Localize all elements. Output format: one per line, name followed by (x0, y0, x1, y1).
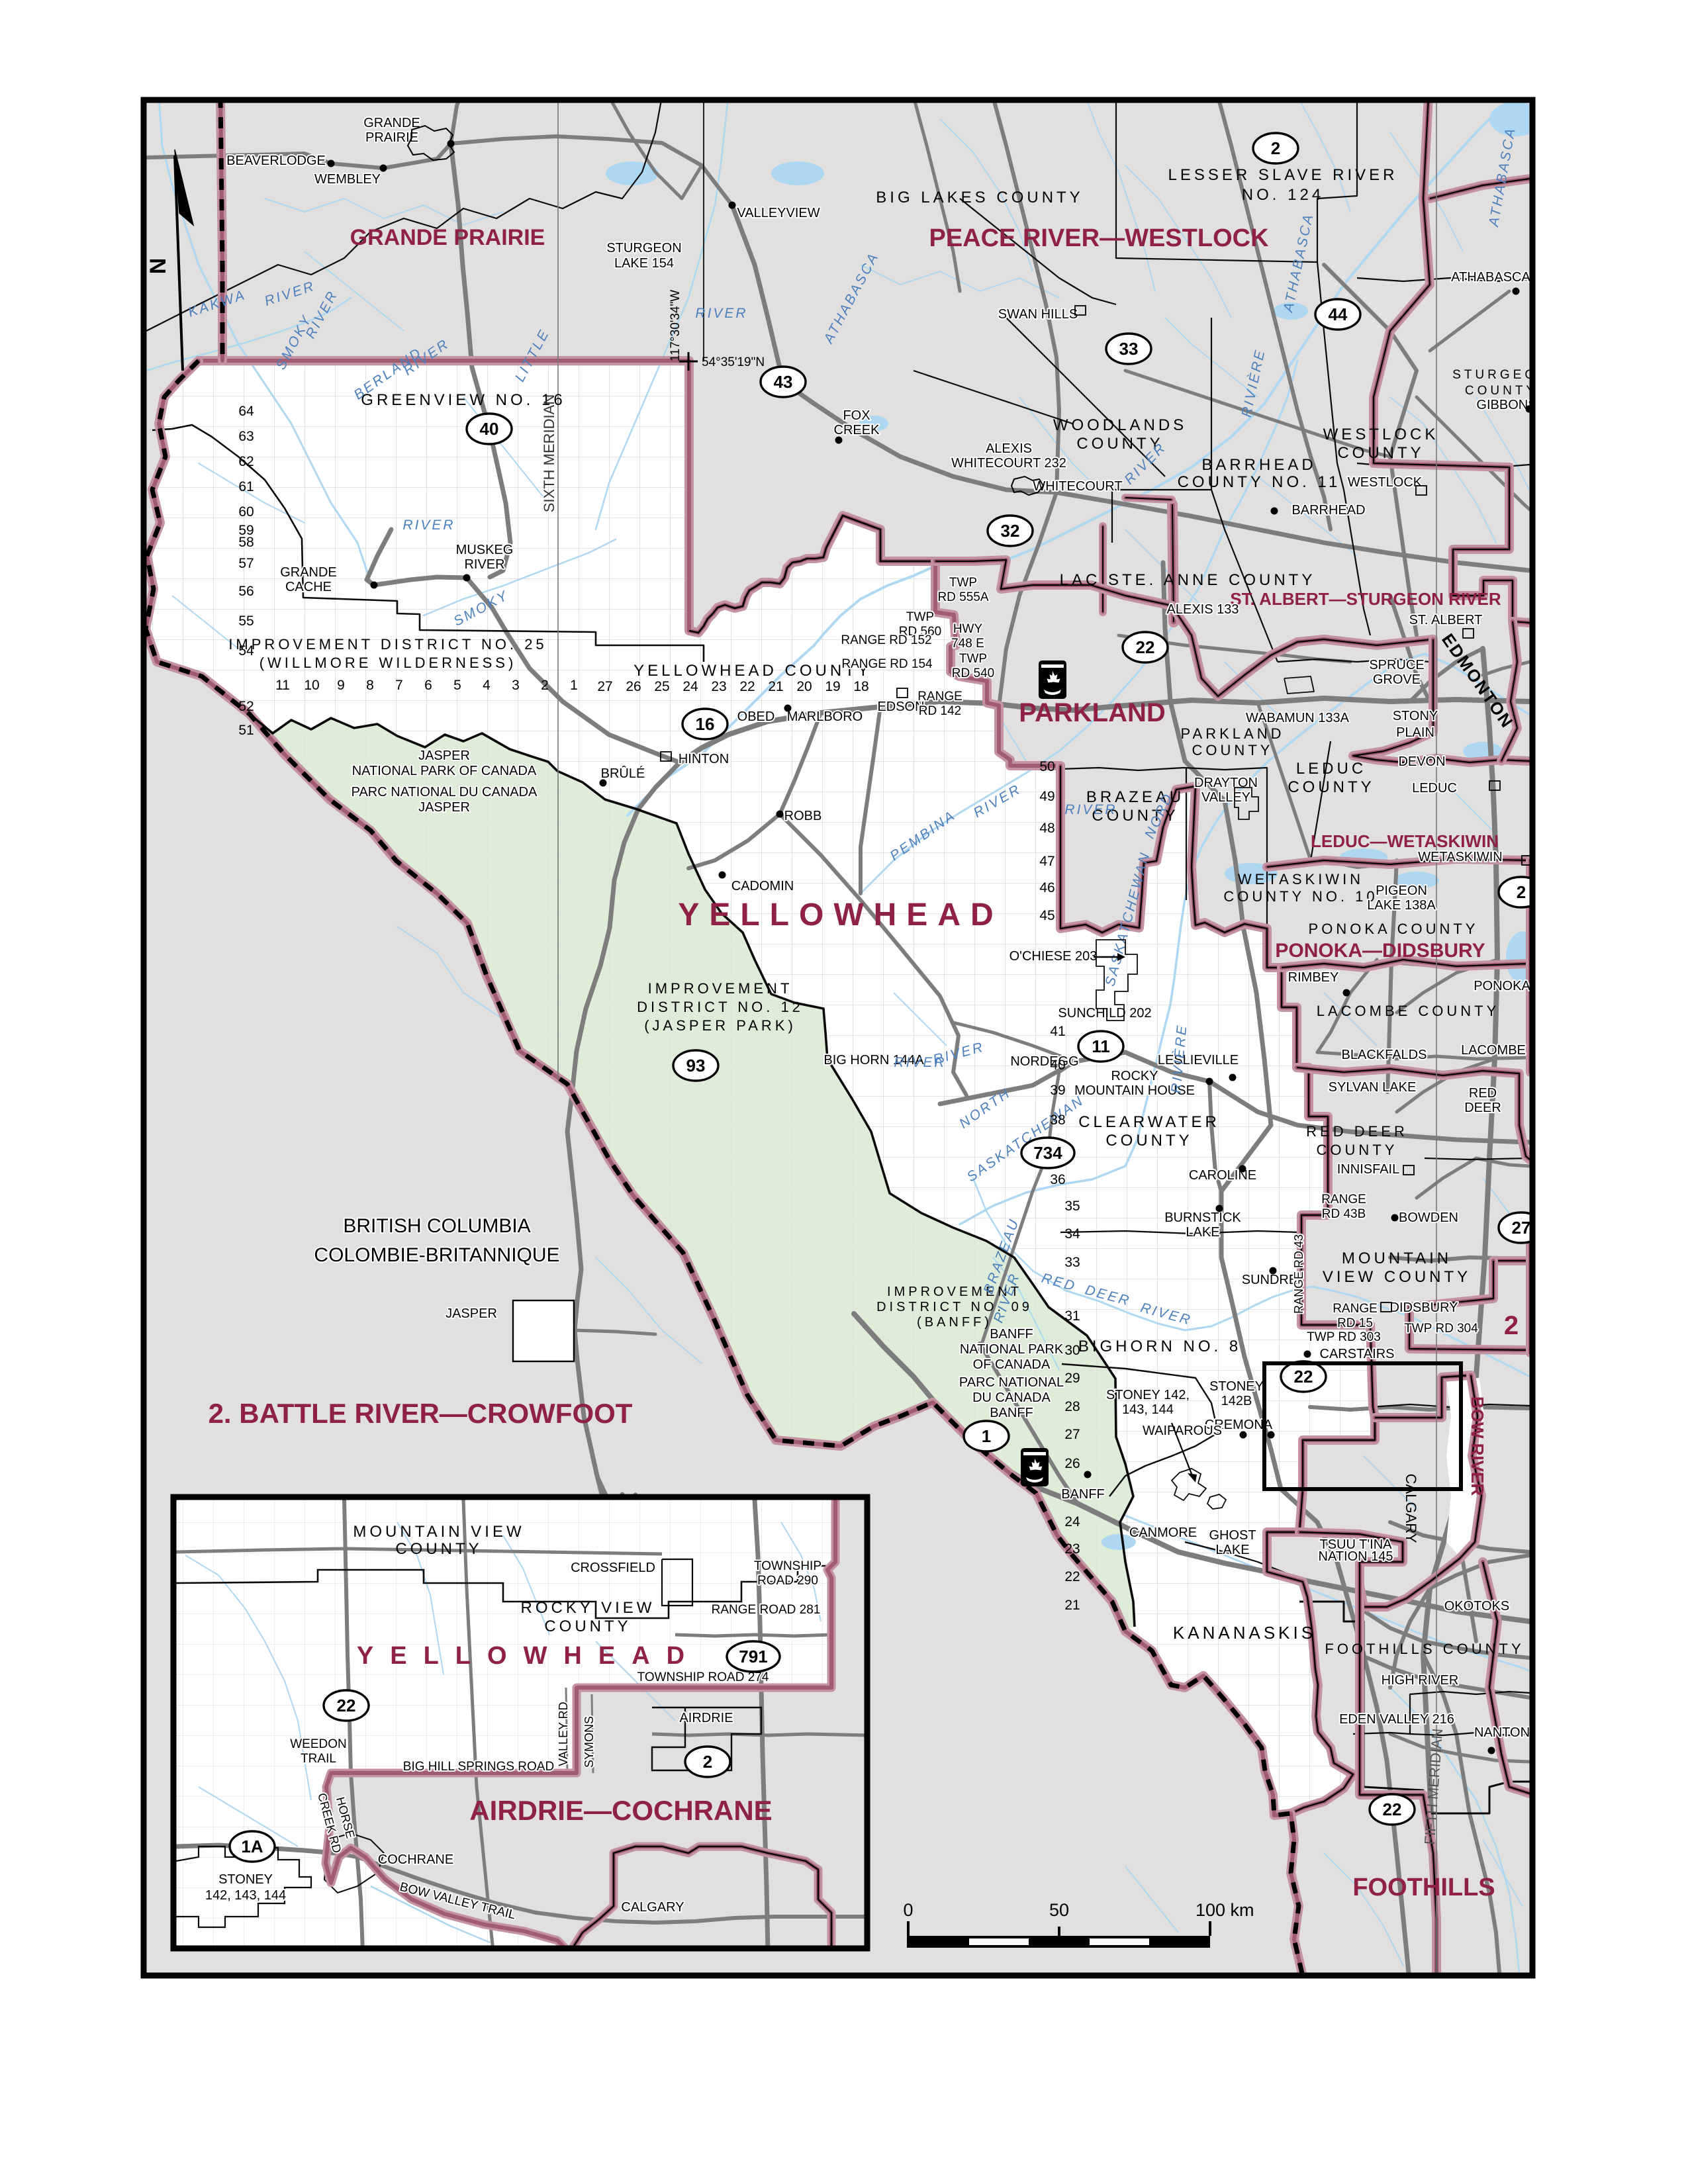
svg-text:TWP RD 303: TWP RD 303 (1307, 1330, 1381, 1344)
svg-text:AIRDRIE—COCHRANE: AIRDRIE—COCHRANE (469, 1795, 772, 1826)
svg-text:24: 24 (682, 679, 698, 694)
svg-text:CAROLINE: CAROLINE (1189, 1168, 1256, 1183)
svg-text:23: 23 (711, 679, 726, 694)
svg-text:BANFF: BANFF (990, 1327, 1033, 1342)
svg-text:RANGE: RANGE (1321, 1193, 1366, 1206)
svg-text:2: 2 (1504, 1311, 1519, 1340)
svg-text:58: 58 (238, 535, 254, 550)
svg-text:LESSER SLAVE RIVER: LESSER SLAVE RIVER (1168, 166, 1398, 184)
svg-text:45: 45 (1039, 908, 1055, 923)
svg-text:142B: 142B (1221, 1394, 1252, 1408)
svg-text:BARRHEAD: BARRHEAD (1291, 503, 1365, 518)
svg-text:WHITECOURT 232: WHITECOURT 232 (951, 456, 1066, 471)
svg-text:CACHE: CACHE (285, 580, 332, 594)
svg-text:RANGE: RANGE (917, 690, 962, 704)
svg-text:748 E: 748 E (951, 637, 984, 651)
svg-text:CANMORE: CANMORE (1129, 1525, 1197, 1540)
svg-text:117°30'34"W: 117°30'34"W (669, 290, 682, 362)
svg-text:10: 10 (304, 678, 319, 693)
svg-text:21: 21 (1064, 1598, 1080, 1613)
svg-text:NATION 145: NATION 145 (1319, 1549, 1393, 1564)
svg-text:27: 27 (1512, 1218, 1531, 1238)
svg-text:BOW RIVER: BOW RIVER (1468, 1396, 1487, 1496)
svg-text:VALLEYVIEW: VALLEYVIEW (737, 206, 820, 220)
svg-text:ALEXIS 133: ALEXIS 133 (1167, 602, 1239, 617)
svg-text:COUNTY: COUNTY (544, 1617, 631, 1635)
svg-text:29: 29 (1064, 1371, 1080, 1386)
svg-text:49: 49 (1039, 789, 1055, 804)
svg-text:BURNSTICK: BURNSTICK (1164, 1210, 1241, 1225)
svg-text:SWAN HILLS: SWAN HILLS (998, 307, 1078, 322)
svg-text:COUNTY: COUNTY (395, 1540, 482, 1558)
svg-text:16: 16 (696, 714, 715, 734)
svg-text:40: 40 (480, 419, 499, 439)
svg-text:LACOMBE COUNTY: LACOMBE COUNTY (1317, 1003, 1500, 1019)
svg-text:36: 36 (1050, 1172, 1065, 1187)
svg-text:6: 6 (424, 678, 432, 693)
svg-text:48: 48 (1039, 821, 1055, 836)
svg-text:MARLBORO: MARLBORO (787, 709, 863, 724)
svg-text:BRÛLÉ: BRÛLÉ (601, 766, 645, 781)
svg-text:CARSTAIRS: CARSTAIRS (1320, 1347, 1395, 1361)
svg-text:BRITISH COLUMBIA: BRITISH COLUMBIA (343, 1215, 530, 1237)
svg-text:JASPER: JASPER (445, 1306, 497, 1321)
svg-text:22: 22 (1136, 637, 1155, 657)
svg-text:40: 40 (1050, 1058, 1065, 1073)
svg-text:SUNDRE: SUNDRE (1242, 1273, 1297, 1287)
svg-text:BIGHORN NO. 8: BIGHORN NO. 8 (1078, 1338, 1241, 1355)
svg-text:11: 11 (1092, 1036, 1110, 1056)
svg-text:NATIONAL PARK: NATIONAL PARK (960, 1342, 1064, 1357)
svg-text:RD 555A: RD 555A (937, 590, 988, 604)
svg-text:GROVE: GROVE (1373, 672, 1421, 687)
svg-text:34: 34 (1064, 1226, 1080, 1242)
svg-text:VIEW COUNTY: VIEW COUNTY (1323, 1268, 1471, 1286)
svg-text:PLAIN: PLAIN (1396, 725, 1434, 740)
svg-text:WESTLOCK: WESTLOCK (1348, 475, 1423, 490)
svg-text:RIMBEY: RIMBEY (1288, 970, 1339, 985)
svg-text:LAKE: LAKE (1215, 1543, 1249, 1557)
svg-text:RIVER: RIVER (695, 306, 747, 321)
svg-text:7: 7 (395, 678, 403, 693)
svg-text:SPRUCE: SPRUCE (1369, 658, 1424, 672)
svg-text:54°35'19"N: 54°35'19"N (702, 355, 765, 369)
svg-text:NATIONAL PARK OF CANADA: NATIONAL PARK OF CANADA (352, 764, 537, 778)
svg-text:PARC NATIONAL DU CANADA: PARC NATIONAL DU CANADA (352, 785, 538, 799)
svg-text:WETASKIWIN: WETASKIWIN (1238, 871, 1364, 887)
svg-text:50: 50 (1039, 759, 1055, 774)
svg-text:19: 19 (825, 679, 840, 694)
svg-text:38: 38 (1050, 1113, 1065, 1128)
svg-text:PIGEON: PIGEON (1376, 884, 1427, 898)
svg-text:PRAIRIE: PRAIRIE (365, 130, 418, 145)
svg-text:22: 22 (337, 1696, 356, 1715)
svg-text:WESTLOCK: WESTLOCK (1323, 426, 1439, 443)
svg-text:52: 52 (238, 699, 254, 714)
svg-text:MOUNTAIN: MOUNTAIN (1342, 1250, 1452, 1267)
svg-text:SYMONS: SYMONS (583, 1716, 596, 1768)
svg-text:YELLOWHEAD: YELLOWHEAD (678, 897, 1003, 933)
svg-text:NO. 124: NO. 124 (1242, 186, 1324, 204)
svg-text:LAKE 154: LAKE 154 (614, 256, 674, 271)
svg-text:3: 3 (512, 678, 520, 693)
svg-text:22: 22 (1383, 1799, 1402, 1819)
svg-text:TRAIL: TRAIL (301, 1752, 336, 1766)
svg-text:COUNTY: COUNTY (1192, 742, 1274, 758)
svg-text:LAC STE. ANNE COUNTY: LAC STE. ANNE COUNTY (1060, 571, 1316, 589)
svg-text:HWY: HWY (953, 622, 983, 636)
svg-text:2. BATTLE RIVER—CROWFOOT: 2. BATTLE RIVER—CROWFOOT (209, 1398, 633, 1429)
svg-text:OF CANADA: OF CANADA (973, 1357, 1051, 1372)
svg-text:24: 24 (1064, 1514, 1080, 1529)
svg-text:STONEY: STONEY (1209, 1379, 1264, 1394)
svg-text:MUSKEG: MUSKEG (456, 543, 514, 557)
svg-text:1: 1 (570, 678, 578, 693)
svg-text:142, 143, 144: 142, 143, 144 (205, 1888, 286, 1903)
svg-text:63: 63 (238, 429, 254, 444)
svg-text:COUNTY: COUNTY (1288, 778, 1374, 796)
svg-text:31: 31 (1064, 1308, 1080, 1324)
svg-text:ATHABASCA: ATHABASCA (1451, 270, 1530, 285)
svg-text:0: 0 (903, 1900, 913, 1920)
svg-text:STONEY 142,: STONEY 142, (1106, 1388, 1190, 1402)
svg-text:57: 57 (238, 556, 254, 571)
svg-text:TWP: TWP (906, 610, 934, 624)
svg-text:OBED: OBED (737, 709, 775, 724)
svg-text:CALGARY: CALGARY (1403, 1474, 1419, 1543)
svg-text:HIGH RIVER: HIGH RIVER (1382, 1673, 1459, 1688)
svg-text:PARC NATIONAL: PARC NATIONAL (959, 1375, 1064, 1390)
svg-text:MOUNTAIN VIEW: MOUNTAIN VIEW (353, 1523, 524, 1541)
svg-text:39: 39 (1050, 1083, 1065, 1098)
svg-text:(BANFF): (BANFF) (917, 1315, 992, 1330)
svg-text:TWP: TWP (959, 652, 987, 666)
svg-text:WOODLANDS: WOODLANDS (1053, 416, 1187, 434)
svg-text:WEMBLEY: WEMBLEY (314, 172, 381, 187)
svg-text:DISTRICT NO. 12: DISTRICT NO. 12 (637, 999, 804, 1015)
svg-text:60: 60 (238, 504, 254, 520)
svg-text:WETASKIWIN: WETASKIWIN (1418, 850, 1502, 864)
svg-text:LACOMBE: LACOMBE (1461, 1043, 1526, 1058)
svg-text:22: 22 (739, 679, 755, 694)
svg-text:RED DEER: RED DEER (1306, 1123, 1408, 1140)
svg-text:143, 144: 143, 144 (1122, 1402, 1174, 1417)
svg-text:44: 44 (1329, 304, 1348, 324)
svg-text:51: 51 (238, 723, 254, 738)
svg-text:47: 47 (1039, 854, 1055, 869)
svg-text:FOOTHILLS: FOOTHILLS (1352, 1874, 1495, 1901)
svg-text:25: 25 (654, 679, 669, 694)
svg-text:5: 5 (453, 678, 461, 693)
svg-text:BIG LAKES COUNTY: BIG LAKES COUNTY (876, 189, 1083, 206)
svg-text:YELLOWHEAD: YELLOWHEAD (357, 1642, 701, 1670)
svg-text:N: N (146, 258, 171, 275)
svg-text:LEDUC: LEDUC (1412, 781, 1457, 796)
svg-text:ROAD 290: ROAD 290 (757, 1574, 818, 1588)
svg-text:LAKE 138A: LAKE 138A (1367, 898, 1436, 913)
svg-text:11: 11 (275, 678, 290, 693)
svg-text:27: 27 (1064, 1427, 1080, 1442)
svg-text:RD 15: RD 15 (1337, 1316, 1373, 1330)
svg-text:COUNTY NO. 10: COUNTY NO. 10 (1223, 888, 1378, 905)
svg-text:CLEARWATER: CLEARWATER (1078, 1113, 1220, 1131)
svg-text:20: 20 (796, 679, 812, 694)
svg-text:BANFF: BANFF (1061, 1487, 1105, 1502)
svg-text:GRANDE PRAIRIE: GRANDE PRAIRIE (350, 225, 545, 250)
svg-text:LEDUC—WETASKIWIN: LEDUC—WETASKIWIN (1311, 831, 1499, 851)
svg-text:CREEK: CREEK (834, 423, 880, 437)
svg-text:WEEDON: WEEDON (290, 1737, 347, 1751)
svg-text:734: 734 (1033, 1143, 1062, 1163)
svg-text:ROBB: ROBB (784, 809, 822, 823)
svg-text:33: 33 (1119, 339, 1139, 359)
svg-text:COCHRANE: COCHRANE (378, 1852, 453, 1867)
svg-text:LEDUC: LEDUC (1296, 760, 1366, 778)
svg-text:STURGEON: STURGEON (606, 241, 681, 255)
svg-text:CADOMIN: CADOMIN (731, 879, 794, 893)
svg-text:61: 61 (238, 479, 254, 494)
svg-text:RANGE: RANGE (1333, 1302, 1378, 1316)
svg-text:18: 18 (853, 679, 868, 694)
svg-text:VALLEY RD: VALLEY RD (557, 1702, 570, 1766)
svg-text:SYLVAN LAKE: SYLVAN LAKE (1329, 1080, 1417, 1095)
svg-text:46: 46 (1039, 880, 1055, 895)
svg-text:VALLEY: VALLEY (1201, 790, 1250, 805)
svg-text:RANGE ROAD 281: RANGE ROAD 281 (712, 1603, 821, 1617)
svg-text:43: 43 (774, 372, 793, 392)
svg-text:8: 8 (366, 678, 374, 693)
svg-text:WABAMUN 133A: WABAMUN 133A (1246, 711, 1350, 725)
svg-text:2: 2 (703, 1752, 712, 1772)
svg-text:CROSSFIELD: CROSSFIELD (571, 1561, 655, 1575)
svg-text:56: 56 (238, 584, 254, 599)
svg-text:STONY: STONY (1393, 709, 1438, 723)
svg-text:2: 2 (1517, 882, 1526, 902)
svg-text:2: 2 (1271, 138, 1280, 158)
svg-text:(JASPER PARK): (JASPER PARK) (644, 1017, 796, 1034)
svg-text:791: 791 (739, 1647, 767, 1666)
svg-text:26: 26 (1064, 1456, 1080, 1471)
svg-text:COUNTY: COUNTY (1337, 444, 1424, 462)
svg-text:64: 64 (238, 404, 254, 419)
svg-text:55: 55 (238, 614, 254, 629)
svg-text:1: 1 (982, 1426, 991, 1446)
svg-text:COLOMBIE-BRITANNIQUE: COLOMBIE-BRITANNIQUE (314, 1244, 559, 1266)
svg-text:BIG HILL SPRINGS ROAD: BIG HILL SPRINGS ROAD (403, 1760, 554, 1774)
svg-text:BANFF: BANFF (990, 1406, 1033, 1420)
svg-text:BARRHEAD: BARRHEAD (1201, 456, 1316, 474)
svg-text:PARKLAND: PARKLAND (1181, 725, 1285, 742)
svg-text:WAIPAROUS: WAIPAROUS (1143, 1424, 1222, 1438)
svg-text:DEER: DEER (1464, 1101, 1501, 1115)
svg-text:PARKLAND: PARKLAND (1019, 698, 1165, 727)
svg-text:HINTON: HINTON (679, 752, 729, 766)
svg-text:LESLIEVILLE: LESLIEVILLE (1158, 1053, 1239, 1068)
svg-text:JASPER: JASPER (418, 749, 470, 763)
svg-text:FOX: FOX (843, 408, 870, 423)
svg-text:33: 33 (1064, 1255, 1080, 1270)
svg-text:(WILLMORE WILDERNESS): (WILLMORE WILDERNESS) (259, 655, 517, 671)
svg-text:PEACE RIVER—WESTLOCK: PEACE RIVER—WESTLOCK (929, 224, 1269, 252)
svg-text:NANTON: NANTON (1474, 1725, 1530, 1740)
svg-text:DU CANADA: DU CANADA (972, 1390, 1051, 1405)
svg-text:62: 62 (238, 454, 254, 469)
svg-text:RANGE RD 43: RANGE RD 43 (1292, 1234, 1305, 1314)
svg-text:22: 22 (1294, 1367, 1313, 1387)
svg-text:41: 41 (1050, 1024, 1065, 1039)
svg-text:COUNTY: COUNTY (1105, 1132, 1192, 1150)
svg-text:RED: RED (1469, 1086, 1497, 1101)
svg-text:PONOKA: PONOKA (1474, 979, 1530, 993)
svg-text:DEVON: DEVON (1398, 754, 1445, 769)
svg-text:GHOST: GHOST (1209, 1528, 1256, 1543)
svg-text:KANANASKIS: KANANASKIS (1173, 1623, 1316, 1643)
svg-text:ST. ALBERT: ST. ALBERT (1409, 613, 1483, 627)
svg-text:1A: 1A (241, 1837, 263, 1856)
svg-text:RD 142: RD 142 (919, 704, 961, 718)
svg-text:RIVER: RIVER (1064, 802, 1117, 817)
svg-text:4: 4 (483, 678, 491, 693)
svg-text:30: 30 (1064, 1343, 1080, 1358)
svg-text:COUNTY: COUNTY (1465, 384, 1538, 398)
svg-text:35: 35 (1064, 1199, 1080, 1214)
svg-text:OKOTOKS: OKOTOKS (1444, 1599, 1510, 1614)
svg-text:54: 54 (238, 643, 254, 659)
svg-text:PONOKA COUNTY: PONOKA COUNTY (1309, 921, 1479, 937)
svg-text:JASPER: JASPER (418, 800, 470, 815)
svg-text:AIRDRIE: AIRDRIE (679, 1711, 733, 1725)
svg-text:STONEY: STONEY (218, 1872, 273, 1887)
svg-text:RIVER: RIVER (402, 518, 455, 533)
svg-text:TWP: TWP (949, 576, 977, 590)
svg-text:27: 27 (597, 679, 612, 694)
svg-text:COUNTY: COUNTY (1317, 1142, 1398, 1158)
svg-text:EDEN VALLEY 216: EDEN VALLEY 216 (1339, 1712, 1454, 1727)
svg-text:GRANDE: GRANDE (280, 565, 337, 580)
svg-text:FOOTHILLS COUNTY: FOOTHILLS COUNTY (1325, 1641, 1524, 1657)
svg-text:GRANDE: GRANDE (363, 116, 420, 130)
svg-text:RIVER: RIVER (464, 557, 504, 572)
svg-text:NORDEGG: NORDEGG (1010, 1054, 1078, 1069)
svg-text:RD 43B: RD 43B (1322, 1207, 1366, 1221)
svg-text:CALGARY: CALGARY (621, 1900, 684, 1915)
svg-text:ST. ALBERT—STURGEON RIVER: ST. ALBERT—STURGEON RIVER (1230, 589, 1501, 609)
svg-text:WHITECOURT: WHITECOURT (1033, 479, 1122, 494)
svg-text:BLACKFALDS: BLACKFALDS (1342, 1048, 1427, 1062)
svg-text:ROCKY VIEW: ROCKY VIEW (521, 1599, 655, 1617)
svg-text:22: 22 (1064, 1569, 1080, 1584)
svg-text:26: 26 (626, 679, 641, 694)
svg-text:28: 28 (1064, 1399, 1080, 1414)
svg-text:RANGE RD 154: RANGE RD 154 (841, 657, 933, 671)
svg-text:IMPROVEMENT DISTRICT NO. 25: IMPROVEMENT DISTRICT NO. 25 (228, 636, 547, 653)
svg-text:BOWDEN: BOWDEN (1399, 1210, 1458, 1225)
svg-text:INNISFAIL: INNISFAIL (1337, 1162, 1399, 1177)
svg-text:IMPROVEMENT: IMPROVEMENT (648, 980, 793, 997)
svg-text:TOWNSHIP: TOWNSHIP (754, 1559, 821, 1573)
svg-text:YELLOWHEAD COUNTY: YELLOWHEAD COUNTY (633, 662, 872, 680)
svg-text:RIVER: RIVER (894, 1055, 946, 1070)
svg-text:100 km: 100 km (1196, 1900, 1254, 1920)
svg-text:21: 21 (768, 679, 783, 694)
svg-text:SIXTH MERIDIAN: SIXTH MERIDIAN (541, 394, 557, 512)
svg-text:23: 23 (1064, 1541, 1080, 1557)
svg-text:BEAVERLODGE: BEAVERLODGE (226, 154, 326, 168)
svg-text:9: 9 (337, 678, 345, 693)
svg-text:GREENVIEW NO. 16: GREENVIEW NO. 16 (361, 391, 565, 409)
svg-text:RD 540: RD 540 (952, 666, 994, 680)
svg-text:93: 93 (686, 1056, 706, 1075)
svg-text:RANGE RD 152: RANGE RD 152 (841, 633, 931, 647)
svg-text:2: 2 (541, 678, 549, 693)
svg-text:PONOKA—DIDSBURY: PONOKA—DIDSBURY (1275, 940, 1485, 962)
svg-text:LAKE: LAKE (1186, 1225, 1219, 1240)
svg-text:50: 50 (1049, 1900, 1069, 1920)
svg-text:COUNTY NO. 11: COUNTY NO. 11 (1178, 473, 1341, 491)
svg-text:O'CHIESE 203: O'CHIESE 203 (1009, 949, 1098, 964)
svg-text:TWP RD 304: TWP RD 304 (1404, 1322, 1478, 1336)
svg-text:DIDSBURY: DIDSBURY (1390, 1300, 1458, 1315)
svg-text:32: 32 (1001, 521, 1020, 541)
svg-text:ROCKY: ROCKY (1111, 1069, 1158, 1083)
svg-text:ALEXIS: ALEXIS (986, 441, 1032, 456)
